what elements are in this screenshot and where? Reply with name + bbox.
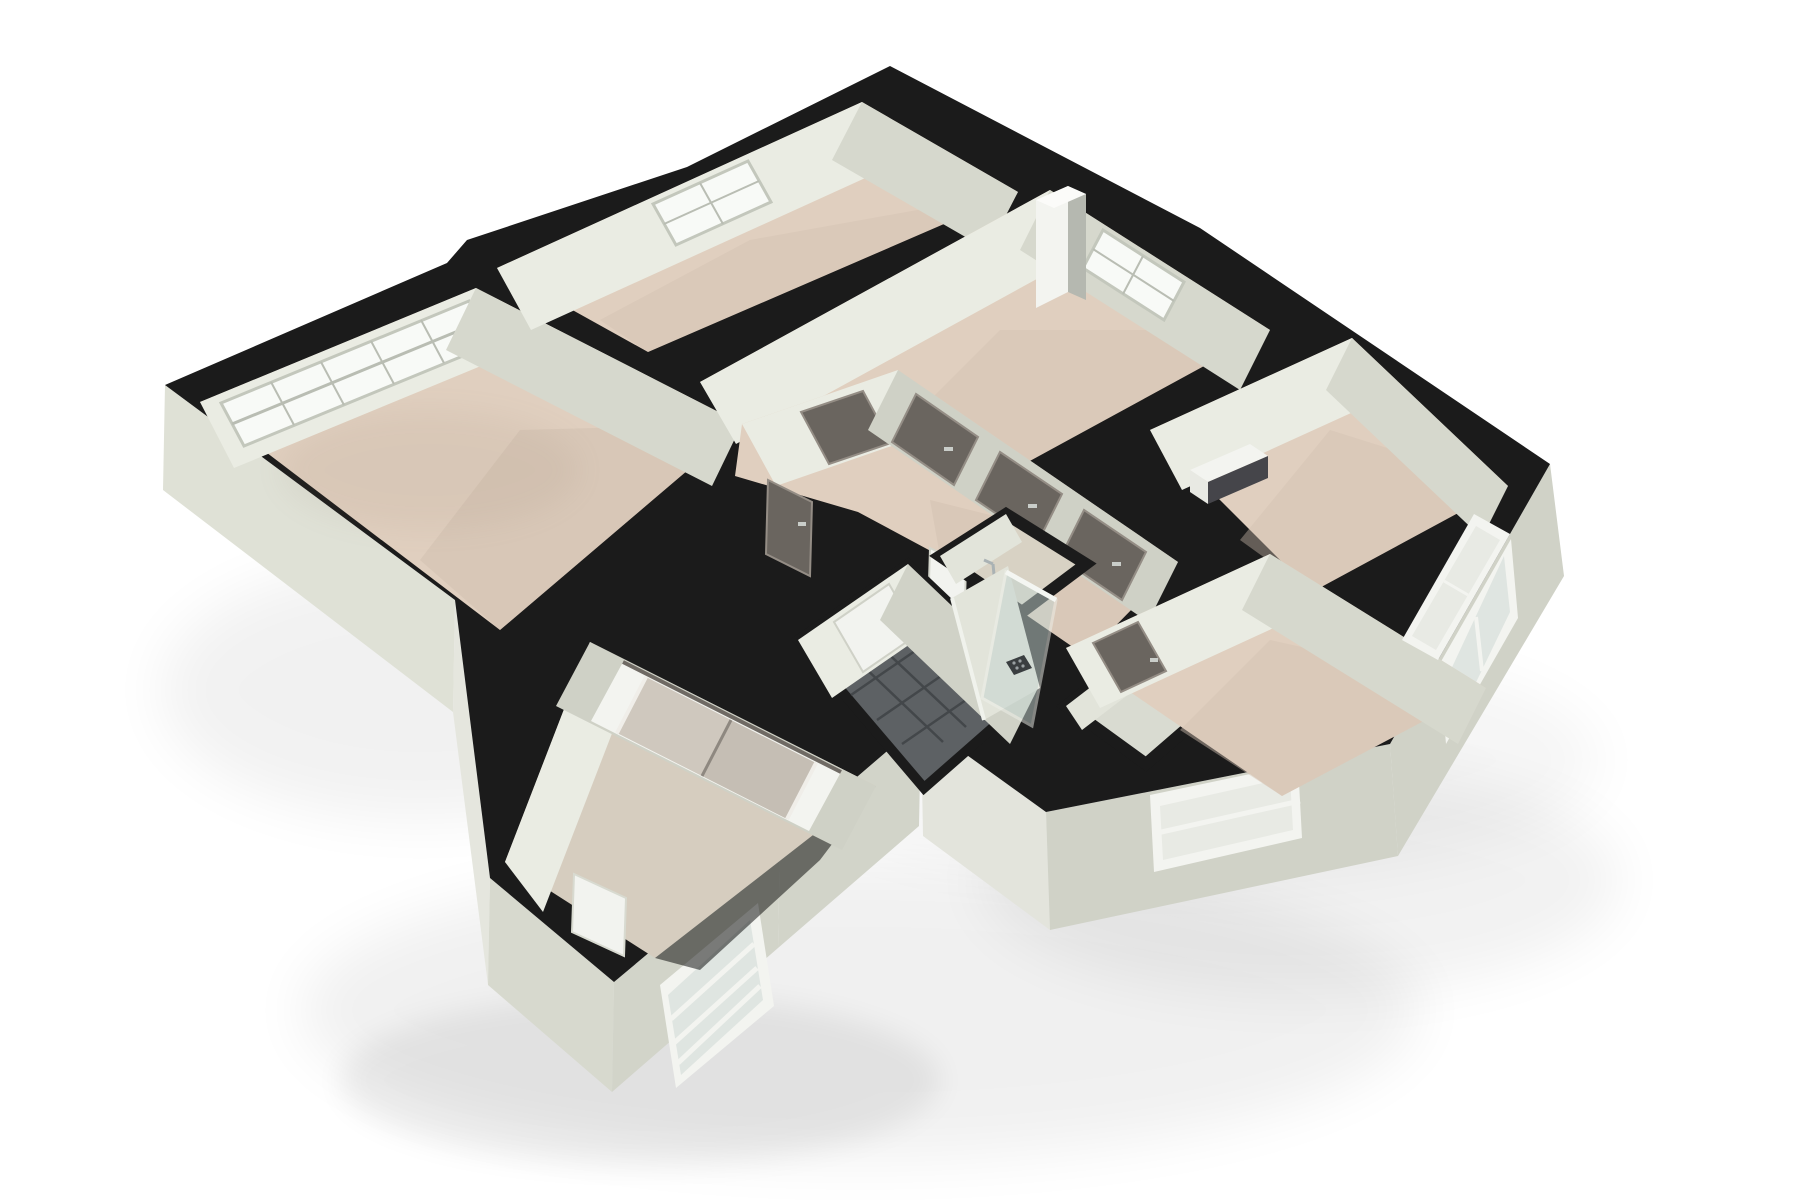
floorplan-render-canvas — [0, 0, 1800, 1200]
floorplan-3d-svg — [0, 0, 1800, 1200]
service-shaft-column — [1036, 186, 1086, 308]
